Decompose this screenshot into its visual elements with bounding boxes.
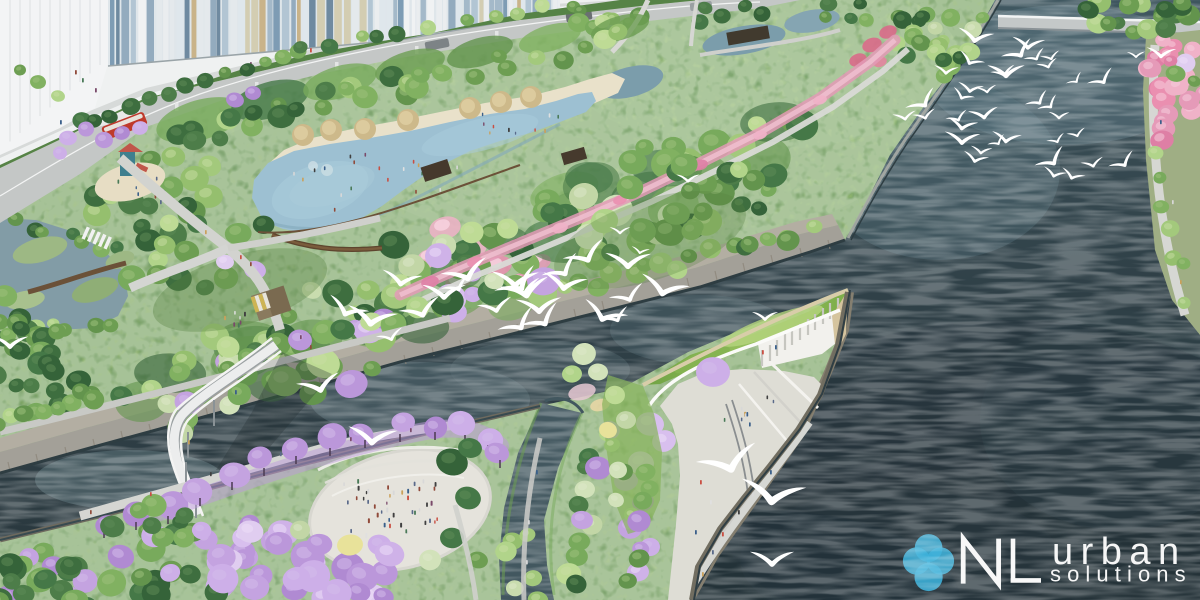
svg-text:solutions: solutions [1050,562,1192,587]
